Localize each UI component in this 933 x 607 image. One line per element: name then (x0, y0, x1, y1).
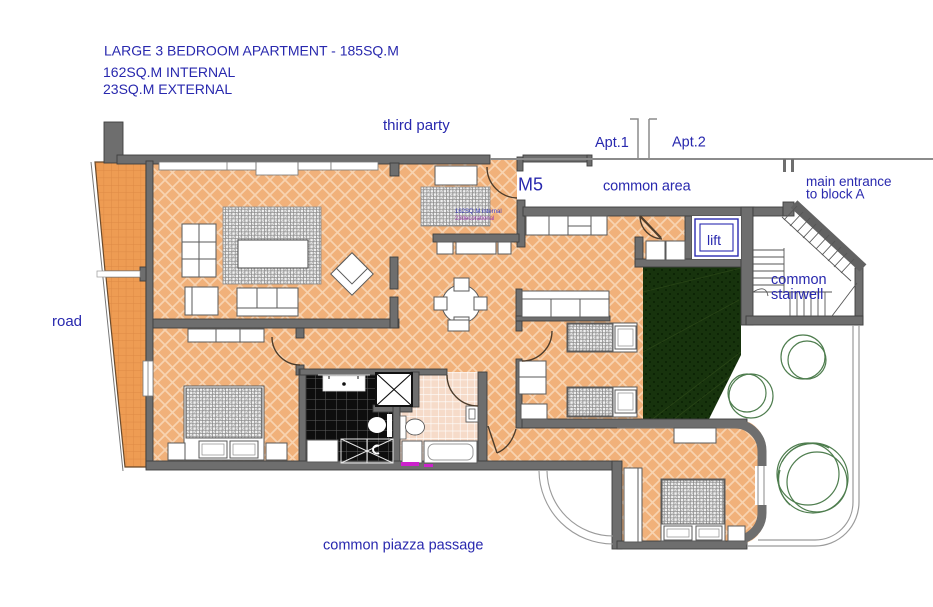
svg-text:Apt.1: Apt.1 (595, 135, 629, 151)
svg-text:Apt.2: Apt.2 (672, 135, 706, 151)
svg-text:23SQ.M EXTERNAL: 23SQ.M EXTERNAL (103, 81, 232, 97)
svg-text:common piazza passage: common piazza passage (323, 538, 483, 554)
svg-text:common area: common area (603, 179, 692, 195)
svg-text:162SQ.M internal: 162SQ.M internal (455, 209, 502, 215)
svg-text:162SQ.M INTERNAL: 162SQ.M INTERNAL (103, 64, 235, 80)
svg-text:lift: lift (707, 232, 721, 248)
svg-text:23decorational: 23decorational (455, 216, 494, 222)
svg-text:M5: M5 (518, 175, 543, 195)
svg-text:to block A: to block A (806, 187, 865, 202)
svg-text:LARGE 3 BEDROOM APARTMENT - 18: LARGE 3 BEDROOM APARTMENT - 185SQ.M (104, 43, 399, 59)
svg-text:common: common (771, 272, 827, 288)
svg-text:road: road (52, 313, 82, 330)
svg-text:third party: third party (383, 117, 450, 134)
svg-text:stairwell: stairwell (771, 287, 823, 303)
